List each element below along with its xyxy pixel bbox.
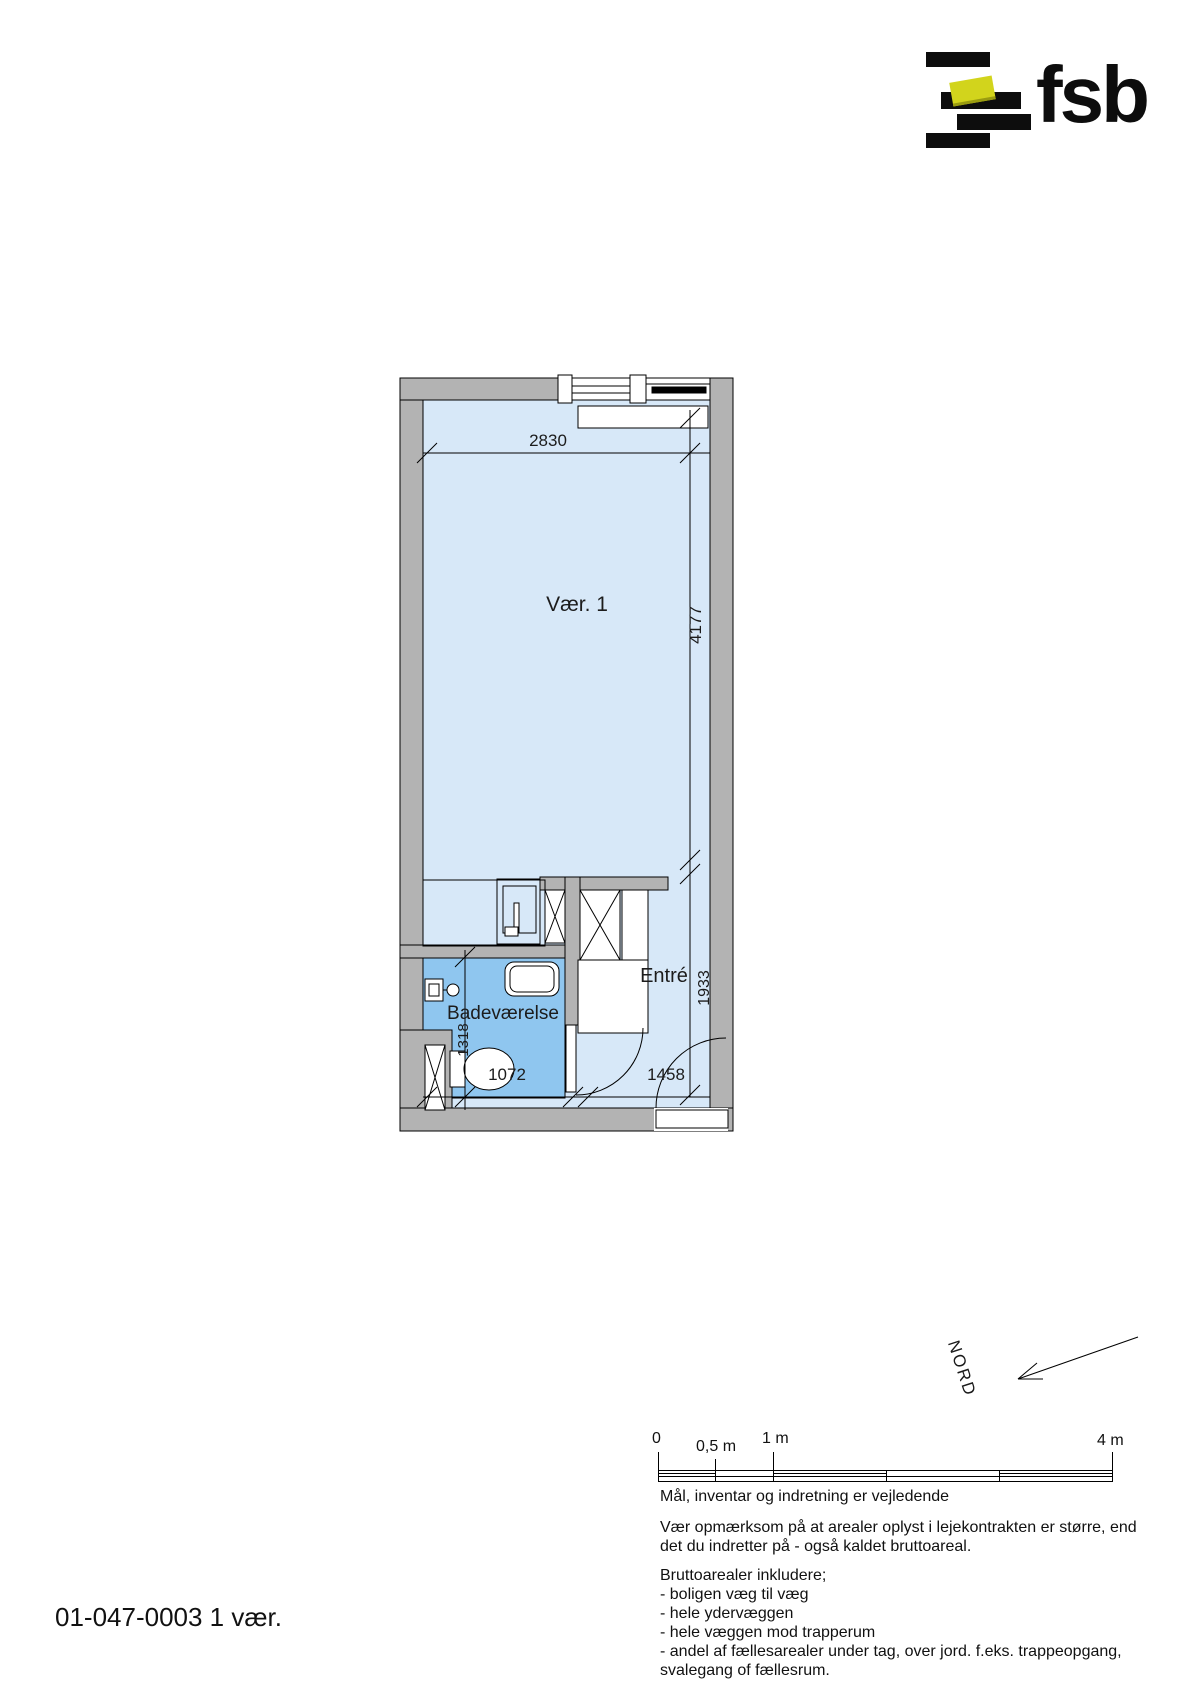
balcony-door-glass: [652, 387, 706, 393]
note-list-2: - hele ydervæggen: [660, 1604, 793, 1623]
wall-tap-knob: [447, 984, 459, 996]
bathroom-top-wall: [400, 945, 565, 958]
floorplan-page: fsb: [0, 0, 1200, 1697]
wardrobe-lower-block: [578, 960, 648, 1033]
window: [558, 375, 710, 403]
wall-tap-box: [425, 979, 443, 1001]
note-list-1: - boligen væg til væg: [660, 1585, 809, 1604]
north-arrow: [1000, 1320, 1160, 1400]
scale-tick-0: [658, 1452, 659, 1470]
scale-tick-05: [715, 1459, 716, 1470]
top-wall: [400, 378, 558, 400]
windowsill: [578, 406, 708, 428]
note-list-5: svalegang of fællesrum.: [660, 1661, 830, 1680]
apartment-id: 01-047-0003 1 vær.: [55, 1602, 282, 1633]
note-list-4: - andel af fællesarealer under tag, over…: [660, 1642, 1122, 1661]
entry-divider-wall: [540, 877, 668, 890]
scale-tick-1: [773, 1452, 774, 1470]
note-list-3: - hele væggen mod trapperum: [660, 1623, 875, 1642]
window-mullion-left: [558, 375, 572, 403]
dim-room-depth: 4177: [686, 606, 705, 644]
scale-label-1: 1 m: [762, 1430, 789, 1448]
wardrobe-cabinet: [622, 890, 648, 960]
entry-door-leaf: [656, 1110, 728, 1128]
dim-entry-depth: 1933: [696, 970, 713, 1006]
window-mullion-mid: [630, 375, 646, 403]
scale-label-4: 4 m: [1097, 1432, 1124, 1450]
floorplan-drawing: 2830 4177 Vær. 1 Badeværelse Entré 1933 …: [0, 0, 1200, 1697]
bathroom-door-leaf: [566, 1025, 576, 1092]
scale-tick-4: [1112, 1452, 1113, 1470]
scale-label-0: 0: [652, 1430, 661, 1448]
dim-bath-width: 1072: [488, 1065, 526, 1084]
note-list-0: Bruttoarealer inkludere;: [660, 1566, 826, 1585]
room-label-vaer1: Vær. 1: [546, 593, 608, 616]
left-wall: [400, 378, 423, 1131]
dim-entry-width: 1458: [647, 1065, 685, 1084]
scale-bar: [658, 1470, 1113, 1482]
right-wall: [710, 378, 733, 1131]
note-bruttoareal-line1: Vær opmærksom på at arealer oplyst i lej…: [660, 1518, 1137, 1537]
dim-bath-depth: 1318: [455, 1023, 472, 1056]
dim-top-width: 2830: [529, 431, 567, 450]
scale-label-05: 0,5 m: [696, 1438, 736, 1456]
room-label-badevaerelse: Badeværelse: [447, 1003, 559, 1024]
room-label-entre: Entré: [640, 965, 688, 987]
note-vejledende: Mål, inventar og indretning er vejledend…: [660, 1487, 949, 1506]
scale-bar-midline: [659, 1476, 1112, 1477]
note-bruttoareal-line2: det du indretter på - også kaldet brutto…: [660, 1537, 971, 1556]
sink-faucet-base: [505, 927, 518, 936]
